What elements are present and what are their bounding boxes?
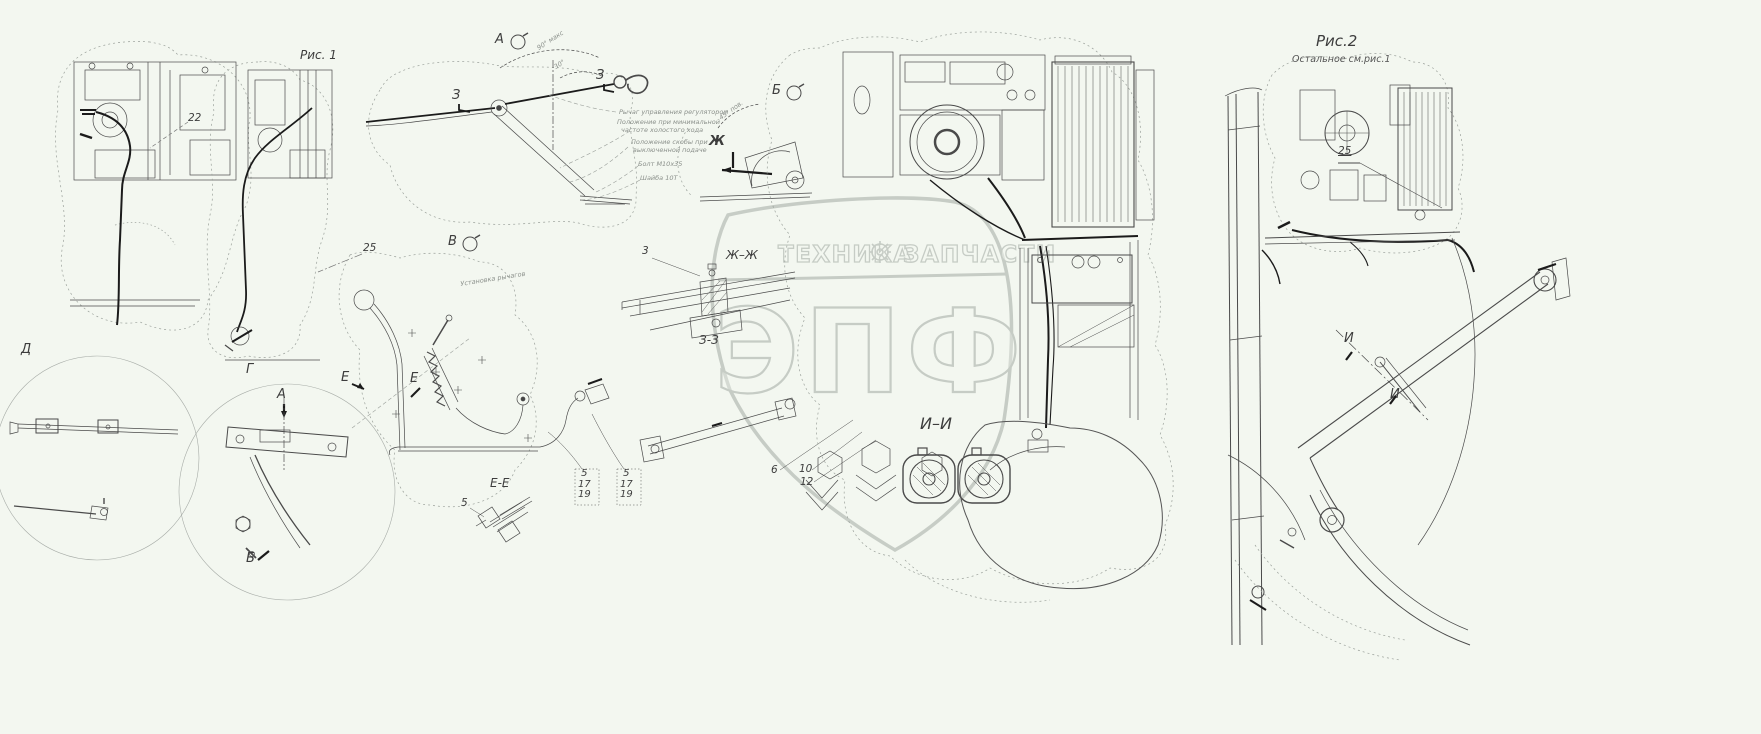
annotation-washer: Шайба 10Т — [640, 175, 677, 182]
cut-marker-z-2: З — [596, 69, 604, 83]
annotation-pos-min-1: Положение при минимальной — [617, 119, 720, 126]
callout-10: 10 — [799, 464, 812, 475]
cut-marker-zh: Ж — [709, 135, 725, 149]
watermark-big-letters: ЭПФ — [714, 285, 1026, 420]
fig2-caption: Рис.2 — [1316, 34, 1357, 50]
fig1-caption: Рис. 1 — [300, 49, 337, 62]
view-marker-b: Б — [772, 84, 781, 98]
view-a-lever-linkage — [366, 33, 648, 227]
view-marker-v: В — [448, 235, 457, 249]
callout-22: 22 — [188, 113, 201, 124]
cut-marker-i-2: И — [1390, 388, 1400, 402]
section-label-ii: И–И — [920, 416, 952, 433]
cut-marker-i-1: И — [1344, 332, 1354, 346]
detail-g-bracket-circle — [179, 384, 395, 600]
callout-3: 3 — [642, 246, 649, 257]
cut-marker-z-1: З — [452, 89, 460, 103]
stack2-19: 19 — [620, 490, 633, 501]
callout-5: 5 — [461, 498, 468, 509]
fig2-loader-side-view — [1225, 54, 1570, 661]
drawing-line-art: ТЕХНИКА ЗАПЧАСТИ ЭПФ — [0, 0, 1761, 734]
cut-marker-b-lower: Б — [246, 552, 255, 566]
annotation-lever: Рычаг управления регулятором — [619, 109, 728, 116]
section-label-zz: З-З — [699, 334, 719, 347]
detail-engine-front-view — [56, 42, 252, 331]
annotation-bolt: Болт М10х35 — [638, 161, 682, 168]
stack1-5: 5 — [578, 469, 591, 480]
watermark-logo: ТЕХНИКА ЗАПЧАСТИ ЭПФ — [712, 198, 1056, 550]
callout-6: 6 — [771, 465, 778, 476]
fig2-subcaption: Остальное см.рис.1 — [1292, 55, 1391, 65]
cut-marker-e-left: Е — [341, 371, 349, 385]
callout-25-fig2: 25 — [1338, 146, 1351, 157]
detail-marker-d: Д — [21, 343, 31, 357]
cut-marker-a-lower: А — [277, 388, 286, 402]
annotation-pos-off-1: Положение скобы при — [631, 139, 708, 146]
section-label-ee: Е-Е — [490, 477, 510, 490]
section-label-zhzh: Ж–Ж — [726, 249, 758, 262]
stack1-19: 19 — [578, 490, 591, 501]
view-marker-a: А — [495, 33, 504, 47]
callout-25-fig1: 25 — [363, 243, 376, 254]
detail-marker-g: Г — [246, 363, 253, 377]
detail-d-cable-circle — [0, 356, 199, 560]
callout-12: 12 — [800, 477, 813, 488]
watermark-band-left: ТЕХНИКА — [778, 242, 913, 268]
stack2-5: 5 — [620, 469, 633, 480]
technical-drawing-sheet: ТЕХНИКА ЗАПЧАСТИ ЭПФ — [0, 0, 1761, 734]
callout-stack-2: 5 17 19 — [620, 469, 633, 501]
view-v-levers-spring — [339, 235, 609, 507]
annotation-pos-off-2: выключенной подаче — [633, 147, 707, 154]
cut-marker-e-right: Е — [410, 372, 418, 386]
callout-stack-1: 5 17 19 — [578, 469, 591, 501]
annotation-pos-min-2: частоте холостого хода — [621, 127, 703, 134]
detail-engine-rear-view — [207, 62, 362, 360]
